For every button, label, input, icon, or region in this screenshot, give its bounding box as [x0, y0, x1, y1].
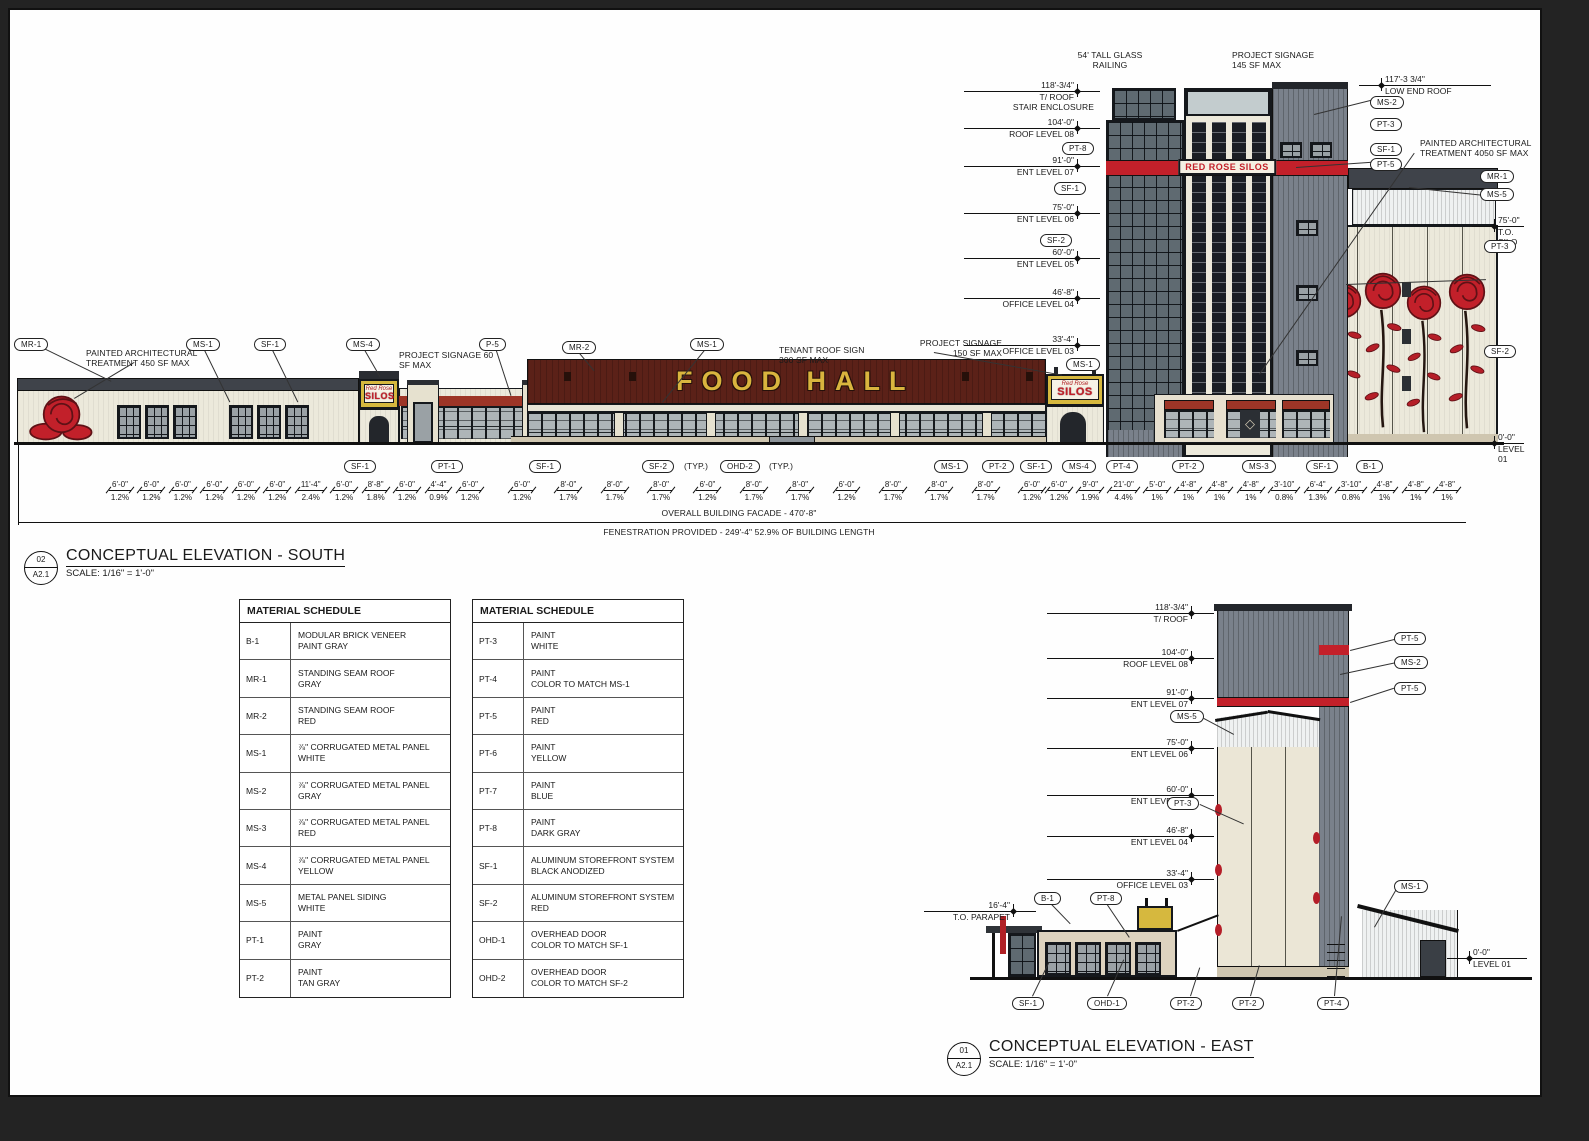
level-value: 91'-0" [1047, 687, 1214, 699]
material-tag: SF-1 [254, 338, 286, 351]
retail-storefront [1164, 410, 1214, 438]
material-tag: SF-1 [344, 460, 376, 473]
level-marker: 118'-3/4"T/ ROOF [1047, 602, 1214, 624]
dimension: 8'-0"1.7% [882, 480, 904, 502]
table-row: MS-2 ⅞" CORRUGATED METAL PANEL GRAY [240, 773, 450, 810]
level-label: T.O. PARAPET [924, 912, 1036, 922]
window [1310, 142, 1332, 158]
rose-mural-icon [1406, 272, 1442, 440]
dimension: 4'-8"1% [1209, 480, 1231, 502]
dimension-slope: 1.7% [975, 491, 997, 502]
rose-edge-mark [1313, 892, 1320, 904]
material-description: PAINT RED [524, 698, 683, 734]
dimension-value: 4'-8" [1177, 480, 1199, 491]
material-code: MR-1 [240, 660, 291, 696]
material-tag: SF-2 [1040, 234, 1072, 247]
storefront-bay [1135, 942, 1161, 975]
material-code: MR-2 [240, 698, 291, 734]
arched-door [1060, 412, 1086, 443]
roof-vent [1026, 372, 1033, 381]
material-tag: PT-8 [1062, 142, 1094, 155]
note-project-signage-150: PROJECT SIGNAGE 150 SF MAX [907, 338, 1002, 358]
table-row: SF-1 ALUMINUM STOREFRONT SYSTEM BLACK AN… [473, 847, 683, 884]
level-marker: 0'-0"LEVEL 01 [1447, 947, 1527, 969]
dimension-slope: 0.8% [1338, 491, 1364, 502]
pylon-cap [407, 380, 439, 385]
storefront-bay [1045, 942, 1071, 975]
material-description: OVERHEAD DOOR COLOR TO MATCH SF-1 [524, 922, 683, 958]
level-marker: 91'-0"ENT LEVEL 07 [964, 155, 1100, 177]
material-description: PAINT TAN GRAY [291, 960, 450, 997]
dimension: 6'-0"1.2% [511, 480, 533, 502]
dimension-value: 3'-10" [1271, 480, 1297, 491]
arched-door [369, 416, 389, 443]
material-code: PT-1 [240, 922, 291, 958]
detail-callout-circle: 02 A2.1 [24, 551, 58, 585]
note-glass-railing: 54' TALL GLASS RAILING [1064, 50, 1156, 70]
dimension: 6'-0"1.2% [836, 480, 858, 502]
dimension-value: 8'-0" [789, 480, 811, 491]
dimension-value: 8'-0" [650, 480, 672, 491]
dimension-value: 9'-0" [1079, 480, 1101, 491]
table-row: PT-2 PAINT TAN GRAY [240, 960, 450, 997]
material-tag: PT-3 [1167, 797, 1199, 810]
window [145, 405, 169, 439]
dimension: 6'-0"1.2% [266, 480, 288, 502]
silo-window [1402, 282, 1411, 297]
table-row: PT-5 PAINT RED [473, 698, 683, 735]
material-tag: MR-1 [14, 338, 48, 351]
window [1296, 350, 1318, 366]
tower-roof-cap [1214, 604, 1352, 611]
material-code: PT-8 [473, 810, 524, 846]
material-tag: PT-2 [1170, 997, 1202, 1010]
left-building-roof [17, 378, 359, 391]
table-row: MS-5 METAL PANEL SIDING WHITE [240, 885, 450, 922]
dimension: 4'-8"1% [1436, 480, 1458, 502]
level-value: 33'-4" [1047, 868, 1214, 880]
window [1280, 142, 1302, 158]
material-description: STANDING SEAM ROOF GRAY [291, 660, 450, 696]
material-code: OHD-2 [473, 960, 524, 997]
ground-line [970, 977, 1532, 980]
material-code: PT-5 [473, 698, 524, 734]
material-code: OHD-1 [473, 922, 524, 958]
dimension: 6'-0"1.2% [172, 480, 194, 502]
dimension-value: 11'-4" [298, 480, 324, 491]
band-sign-text: RED ROSE SILOS [1178, 159, 1276, 175]
material-tag: MR-1 [1480, 170, 1514, 183]
level-marker: 0'-0"LEVEL 01 [1472, 432, 1524, 464]
dimension-value: 8'-0" [928, 480, 950, 491]
level-value: 75'-0" [1472, 215, 1524, 227]
rose-edge-mark [1215, 924, 1222, 936]
level-marker: 117'-3 3/4"LOW END ROOF [1359, 74, 1491, 96]
dimension: 4'-8"1% [1405, 480, 1427, 502]
east-elevation: 118'-3/4"T/ ROOF 104'-0"ROOF LEVEL 08 91… [942, 592, 1542, 1032]
dimension: 4'-8"1% [1240, 480, 1262, 502]
dimension-value: 4'-4" [428, 480, 450, 491]
level-label: LEVEL 01 [1472, 444, 1524, 464]
dimension: 6'-0"1.2% [203, 480, 225, 502]
material-tag: MS-3 [1242, 460, 1276, 473]
table-row: MR-1 STANDING SEAM ROOF GRAY [240, 660, 450, 697]
level-value: 118'-3/4" [964, 80, 1100, 92]
leader-line [1350, 688, 1394, 703]
material-code: PT-6 [473, 735, 524, 771]
material-tag: PT-5 [1370, 158, 1402, 171]
level-value: 104'-0" [964, 117, 1100, 129]
material-code: MS-1 [240, 735, 291, 771]
dimension-slope: 1.8% [365, 491, 387, 502]
dimension: 8'-0"1.7% [743, 480, 765, 502]
level-label: ROOF LEVEL 08 [964, 129, 1100, 139]
material-description: OVERHEAD DOOR COLOR TO MATCH SF-2 [524, 960, 683, 997]
dimension-value: 4'-8" [1405, 480, 1427, 491]
view-title: CONCEPTUAL ELEVATION - EAST [989, 1038, 1254, 1058]
table-row: MS-1 ⅞" CORRUGATED METAL PANEL WHITE [240, 735, 450, 772]
material-tag: SF-1 [1012, 997, 1044, 1010]
material-tag: PT-8 [1090, 892, 1122, 905]
silo-window [1402, 329, 1411, 344]
dimension-value: 8'-8" [365, 480, 387, 491]
dimension-slope: 2.4% [298, 491, 324, 502]
dimension-value: 5'-0" [1146, 480, 1168, 491]
sign-main-text: SILOS [1052, 387, 1098, 398]
material-tag: B-1 [1356, 460, 1383, 473]
storefront-pier [798, 412, 808, 439]
material-tag: PT-2 [1232, 997, 1264, 1010]
dimension-value: 6'-0" [172, 480, 194, 491]
level-marker: 91'-0"ENT LEVEL 07 [1047, 687, 1214, 709]
window [257, 405, 281, 439]
rose-edge-mark [1313, 832, 1320, 844]
material-tag: SF-1 [1054, 182, 1086, 195]
material-tag: MS-1 [934, 460, 968, 473]
dimension: 4'-8"1% [1177, 480, 1199, 502]
table-row: PT-3 PAINT WHITE [473, 623, 683, 660]
storefront-pier [982, 412, 992, 439]
level-label: LOW END ROOF [1359, 86, 1491, 96]
silo-stave-line [1285, 747, 1286, 977]
dimension-slope: 4.4% [1110, 491, 1136, 502]
level-value: 91'-0" [964, 155, 1100, 167]
food-hall-storefront [527, 412, 1046, 439]
detail-callout-circle: 01 A2.1 [947, 1042, 981, 1076]
dimension-slope: 1.7% [604, 491, 626, 502]
material-description: ⅞" CORRUGATED METAL PANEL YELLOW [291, 847, 450, 883]
level-label: OFFICE LEVEL 04 [964, 299, 1100, 309]
material-tag: MS-1 [186, 338, 220, 351]
leader-line [1350, 639, 1395, 651]
level-label: ENT LEVEL 06 [1047, 749, 1214, 759]
dimension: 8'-0"1.7% [604, 480, 626, 502]
window [117, 405, 141, 439]
note-project-signage-60: PROJECT SIGNAGE 60 SF MAX [399, 350, 509, 370]
dimension-value: 3'-10" [1338, 480, 1364, 491]
material-tag: MS-1 [690, 338, 724, 351]
window [1296, 220, 1318, 236]
rose-edge-mark [1215, 864, 1222, 876]
dimension: 6'-4"1.3% [1307, 480, 1329, 502]
dimension-value: 6'-4" [1307, 480, 1329, 491]
dimension-value: 6'-0" [1048, 480, 1070, 491]
table-rows: PT-3 PAINT WHITE PT-4 PAINT COLOR TO MAT… [473, 623, 683, 997]
awning-band [1226, 400, 1276, 410]
dimension-value: 6'-0" [459, 480, 481, 491]
level-label: ENT LEVEL 06 [964, 214, 1100, 224]
dimension-value: 6'-0" [1021, 480, 1043, 491]
dimension-value: 8'-0" [557, 480, 579, 491]
dimension-value: 6'-0" [109, 480, 131, 491]
dimension: 8'-0"1.7% [975, 480, 997, 502]
material-code: MS-2 [240, 773, 291, 809]
dimension-group-b: 6'-0"1.2%8'-0"1.7%8'-0"1.7%8'-0"1.7%6'-0… [511, 480, 1043, 502]
material-tag: PT-5 [1394, 632, 1426, 645]
level-label: ENT LEVEL 05 [964, 259, 1100, 269]
glass-railing [1186, 90, 1270, 116]
level-value: 60'-0" [964, 247, 1100, 259]
facade-note: OVERALL BUILDING FACADE - 470'-8" [14, 508, 1464, 518]
material-description: PAINT WHITE [524, 623, 683, 659]
level-marker: 60'-0"ENT LEVEL 05 [964, 247, 1100, 269]
dimension-value: 6'-0" [203, 480, 225, 491]
material-tag: OHD-1 [1087, 997, 1127, 1010]
level-marker: 33'-4"OFFICE LEVEL 03 [1047, 868, 1214, 890]
material-description: ⅞" CORRUGATED METAL PANEL RED [291, 810, 450, 846]
table-row: OHD-2 OVERHEAD DOOR COLOR TO MATCH SF-2 [473, 960, 683, 997]
table-row: SF-2 ALUMINUM STOREFRONT SYSTEM RED [473, 885, 683, 922]
material-tag: B-1 [1034, 892, 1061, 905]
dimension-value: 6'-0" [696, 480, 718, 491]
sign-main-text: SILOS [365, 392, 393, 401]
leader-line [1190, 967, 1200, 996]
table-row: PT-6 PAINT YELLOW [473, 735, 683, 772]
material-tag: MS-4 [346, 338, 380, 351]
gray-strip-tower [1319, 707, 1349, 977]
note-tenant-roof-sign: TENANT ROOF SIGN 300 SF MAX [779, 345, 879, 365]
material-tag: MS-1 [1066, 358, 1100, 371]
canopy-roof [986, 926, 1042, 933]
table-row: B-1 MODULAR BRICK VENEER PAINT GRAY [240, 623, 450, 660]
level-value: 60'-0" [1047, 784, 1214, 796]
storefront-pier [706, 412, 716, 439]
material-tag: PT-5 [1394, 682, 1426, 695]
dimension-value: 4'-8" [1209, 480, 1231, 491]
note-stair-enclosure: STAIR ENCLOSURE [1002, 102, 1094, 112]
roof-vent [564, 372, 571, 381]
level-value: 75'-0" [1047, 737, 1214, 749]
dimension: 6'-0"1.2% [1048, 480, 1070, 502]
dimension: 5'-0"1% [1146, 480, 1168, 502]
dimension-value: 8'-0" [743, 480, 765, 491]
storefront-pier [890, 412, 900, 439]
dimension-value: 21'-0" [1110, 480, 1136, 491]
level-value: 117'-3 3/4" [1359, 74, 1491, 86]
material-tag: SF-2 [1484, 345, 1516, 358]
material-tag: MR-2 [562, 341, 596, 354]
facade-dimension-line [18, 522, 1466, 523]
sheet-number: A2.1 [948, 1059, 980, 1073]
level-value: 75'-0" [964, 202, 1100, 214]
dimension-slope: 1.3% [1307, 491, 1329, 502]
table-row: PT-4 PAINT COLOR TO MATCH MS-1 [473, 660, 683, 697]
window [285, 405, 309, 439]
title-text-group: CONCEPTUAL ELEVATION - EAST SCALE: 1/16"… [989, 1038, 1254, 1070]
detail-number: 01 [948, 1043, 980, 1059]
level-marker: 75'-0"ENT LEVEL 06 [1047, 737, 1214, 759]
table-row: OHD-1 OVERHEAD DOOR COLOR TO MATCH SF-1 [473, 922, 683, 959]
dimension-value: 8'-0" [975, 480, 997, 491]
material-description: ALUMINUM STOREFRONT SYSTEM RED [524, 885, 683, 921]
red-rose-silos-band: RED ROSE SILOS [1106, 160, 1348, 176]
material-code: PT-7 [473, 773, 524, 809]
material-description: METAL PANEL SIDING WHITE [291, 885, 450, 921]
dimension: 6'-0"1.2% [696, 480, 718, 502]
material-tag: PT-4 [1317, 997, 1349, 1010]
dimension: 4'-4"0.9% [428, 480, 450, 502]
typ-note: (TYP.) [684, 461, 708, 471]
awning-band [1282, 400, 1330, 410]
level-value: 16'-4" [924, 900, 1036, 912]
level-value: 46'-8" [1047, 825, 1214, 837]
view-scale: SCALE: 1/16" = 1'-0" [989, 1058, 1254, 1070]
table-row: PT-1 PAINT GRAY [240, 922, 450, 959]
level-label: T/ ROOF [964, 92, 1100, 102]
canopy-glazing [1008, 933, 1036, 977]
view-title: CONCEPTUAL ELEVATION - SOUTH [66, 547, 345, 567]
storefront-bay [1075, 942, 1101, 975]
dimension: 8'-0"1.7% [557, 480, 579, 502]
level-marker: 46'-8"ENT LEVEL 04 [1047, 825, 1214, 847]
drawing-sheet: Red Rose SILOS FOOD HALL Red Rose SILOS [8, 8, 1542, 1097]
dimension: 4'-8"1% [1374, 480, 1396, 502]
dimension: 9'-0"1.9% [1079, 480, 1101, 502]
material-tag: PT-1 [431, 460, 463, 473]
material-code: MS-5 [240, 885, 291, 921]
level-label: ROOF LEVEL 08 [1047, 659, 1214, 669]
dimension-value: 6'-0" [396, 480, 418, 491]
table-title: MATERIAL SCHEDULE [240, 600, 450, 623]
rose-mural-icon [1448, 258, 1486, 438]
material-tag: MS-1 [1394, 880, 1428, 893]
dimension-value: 6'-0" [266, 480, 288, 491]
level-marker: 118'-3/4"T/ ROOF [964, 80, 1100, 102]
material-description: PAINT COLOR TO MATCH MS-1 [524, 660, 683, 696]
table-row: PT-7 PAINT BLUE [473, 773, 683, 810]
dimension: 8'-0"1.7% [928, 480, 950, 502]
dimension: 8'-0"1.7% [789, 480, 811, 502]
window [229, 405, 253, 439]
material-tag: MS-2 [1370, 96, 1404, 109]
south-title-block: 02 A2.1 CONCEPTUAL ELEVATION - SOUTH SCA… [24, 547, 345, 581]
level-marker: 104'-0"ROOF LEVEL 08 [1047, 647, 1214, 669]
material-tag: PT-4 [1106, 460, 1138, 473]
dimension-value: 6'-0" [140, 480, 162, 491]
dimension: 8'-8"1.8% [365, 480, 387, 502]
south-elevation: Red Rose SILOS FOOD HALL Red Rose SILOS [14, 42, 1524, 547]
material-schedule-table-1: MATERIAL SCHEDULE B-1 MODULAR BRICK VENE… [239, 599, 451, 998]
stair-enclosure-glass [1112, 88, 1176, 120]
material-description: ALUMINUM STOREFRONT SYSTEM BLACK ANODIZE… [524, 847, 683, 883]
note-painted-450: PAINTED ARCHITECTURAL TREATMENT 450 SF M… [86, 348, 216, 368]
dimension-value: 6'-0" [235, 480, 257, 491]
level-label: OFFICE LEVEL 03 [1047, 880, 1214, 890]
material-description: MODULAR BRICK VENEER PAINT GRAY [291, 623, 450, 659]
material-description: PAINT BLUE [524, 773, 683, 809]
dimension-value: 6'-0" [836, 480, 858, 491]
level-marker: 46'-8"OFFICE LEVEL 04 [964, 287, 1100, 309]
headhouse-roof [1348, 168, 1498, 189]
shed-door [1420, 940, 1446, 977]
view-scale: SCALE: 1/16" = 1'-0" [66, 567, 345, 579]
yellow-rooftop-box [1137, 906, 1173, 930]
table-title: MATERIAL SCHEDULE [473, 600, 683, 623]
material-tag: MS-5 [1170, 710, 1204, 723]
note-project-signage-145: PROJECT SIGNAGE 145 SF MAX [1232, 50, 1342, 70]
material-tag: SF-1 [1370, 143, 1402, 156]
dimension: 11'-4"2.4% [298, 480, 324, 502]
level-label: ENT LEVEL 07 [964, 167, 1100, 177]
material-code: SF-1 [473, 847, 524, 883]
dimension: 8'-0"1.7% [650, 480, 672, 502]
material-code: PT-3 [473, 623, 524, 659]
east-title-block: 01 A2.1 CONCEPTUAL ELEVATION - EAST SCAL… [947, 1038, 1254, 1072]
entry-door [413, 402, 433, 443]
dimension-value: 6'-0" [511, 480, 533, 491]
material-code: PT-2 [240, 960, 291, 997]
dimension-value: 4'-8" [1436, 480, 1458, 491]
rose-mural-icon [22, 393, 104, 443]
red-rose-silos-sign: Red Rose SILOS [359, 379, 399, 409]
material-description: STANDING SEAM ROOF RED [291, 698, 450, 734]
dimension-group-a: 6'-0"1.2%6'-0"1.2%6'-0"1.2%6'-0"1.2%6'-0… [109, 480, 481, 502]
material-tag: SF-2 [642, 460, 674, 473]
food-hall-sign: FOOD HALL [676, 366, 914, 397]
table-row: MS-3 ⅞" CORRUGATED METAL PANEL RED [240, 810, 450, 847]
red-paint-band [1217, 697, 1349, 707]
material-tag: MS-2 [1394, 656, 1428, 669]
diamond-window-door: ◇ [1240, 410, 1260, 438]
level-value: 0'-0" [1447, 947, 1527, 959]
dimension: 3'-10"0.8% [1271, 480, 1297, 502]
material-tag: MS-4 [1062, 460, 1096, 473]
material-tag: PT-2 [982, 460, 1014, 473]
slope-roof-line [1177, 914, 1219, 932]
level-value: 104'-0" [1047, 647, 1214, 659]
material-code: PT-4 [473, 660, 524, 696]
material-tag: SF-1 [1020, 460, 1052, 473]
material-description: PAINT YELLOW [524, 735, 683, 771]
material-description: ⅞" CORRUGATED METAL PANEL WHITE [291, 735, 450, 771]
material-tag: PT-2 [1172, 460, 1204, 473]
dimension: 6'-0"1.2% [396, 480, 418, 502]
material-code: SF-2 [473, 885, 524, 921]
retail-storefront [1282, 410, 1330, 438]
roof-vent [629, 372, 636, 381]
typ-note: (TYP.) [769, 461, 793, 471]
level-label: T/ ROOF [1047, 614, 1214, 624]
dimension-group-c: 6'-0"1.2%9'-0"1.9%21'-0"4.4%5'-0"1%4'-8"… [1048, 480, 1458, 502]
level-value: 46'-8" [964, 287, 1100, 299]
awning-band [1164, 400, 1214, 410]
dimension: 21'-0"4.4% [1110, 480, 1136, 502]
dimension-value: 8'-0" [604, 480, 626, 491]
material-tag: PT-3 [1484, 240, 1516, 253]
dimension: 3'-10"0.8% [1338, 480, 1364, 502]
table-rows: B-1 MODULAR BRICK VENEER PAINT GRAY MR-1… [240, 623, 450, 997]
level-label: ENT LEVEL 07 [1047, 699, 1214, 709]
